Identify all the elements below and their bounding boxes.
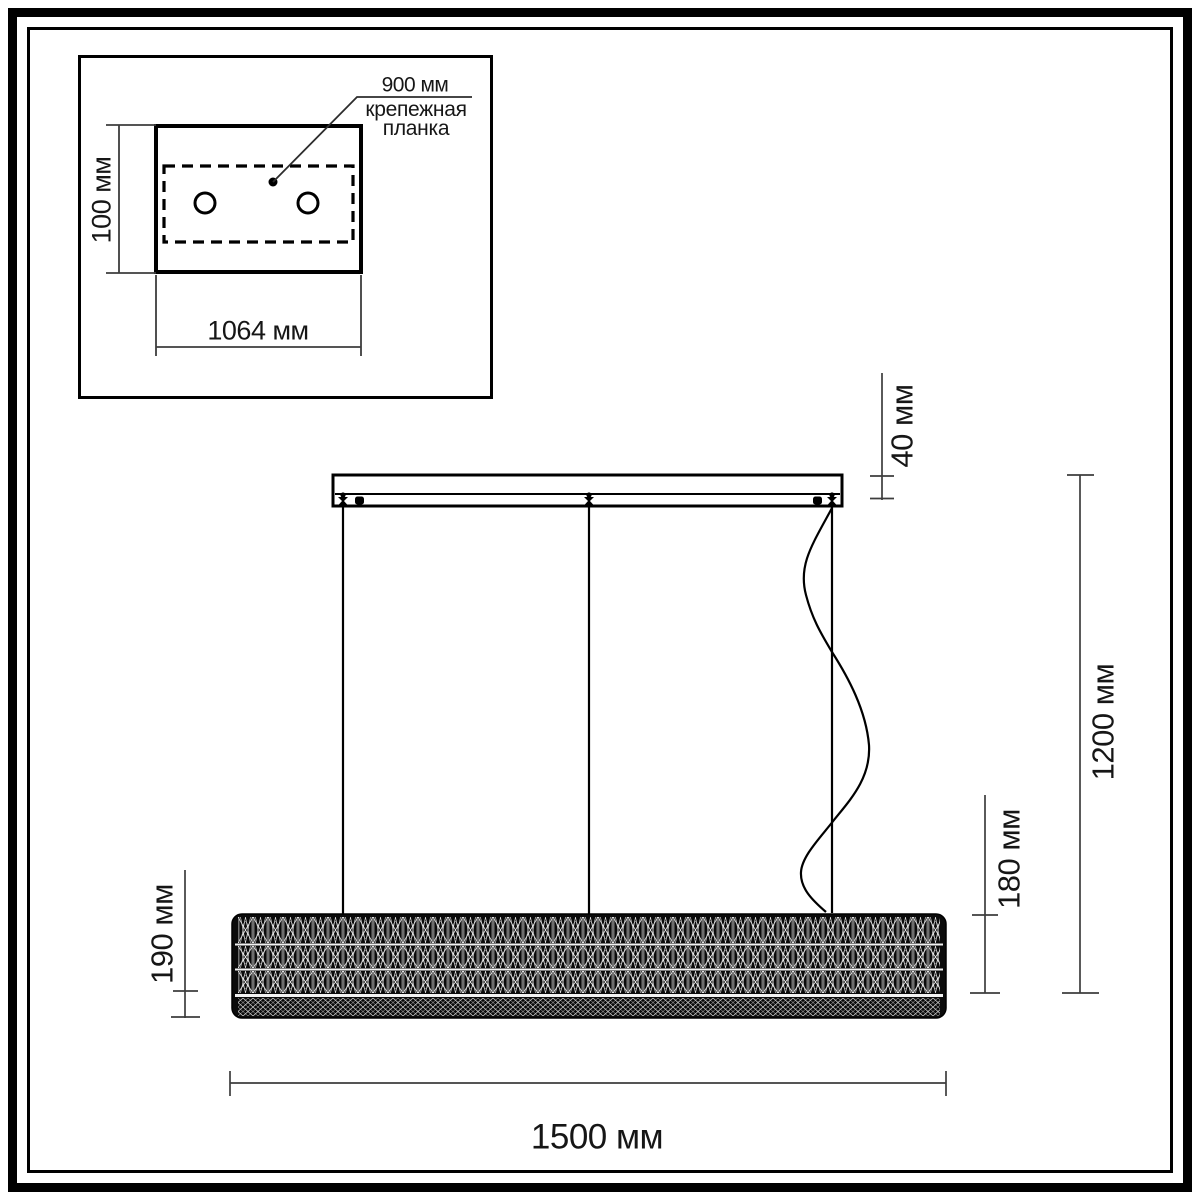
connector-block-left: [355, 497, 364, 505]
fixture-length-dim-label: 1500 мм: [531, 1120, 663, 1155]
power-cord: [801, 508, 869, 912]
fixture-length-dim-lines: [230, 1071, 946, 1096]
canopy-height-dim-label: 40 мм: [887, 384, 918, 467]
crystal-bottom-band: [238, 998, 940, 1016]
screw-hole-right: [298, 193, 318, 213]
mounting-plate-outline: [156, 126, 361, 272]
callout-text-label: крепежная планка: [365, 100, 466, 138]
connector-dot-middle: [586, 492, 591, 497]
crystal-row-2: [238, 946, 940, 968]
plate-height-dim-label: 100 мм: [89, 157, 116, 244]
connector-block-right: [813, 497, 822, 505]
callout-value-label: 900 мм: [382, 75, 449, 96]
screw-hole-left: [195, 193, 215, 213]
connector-dot-right: [829, 492, 834, 497]
diagram-canvas: [0, 0, 1200, 1200]
lamp-dimension-diagram: 900 мм крепежная планка 100 мм 1064 мм 4…: [0, 0, 1200, 1200]
overall-height-dim-label: 1200 мм: [1088, 664, 1119, 781]
callout-text-line2: планка: [365, 119, 466, 138]
plate-width-dim-label: 1064 мм: [207, 318, 308, 345]
ceiling-canopy-bar: [333, 475, 842, 506]
fixture-height-dim-label: 190 мм: [147, 884, 178, 984]
suspension-height-dim-label: 180 мм: [994, 809, 1025, 909]
crystal-row-3: [238, 971, 940, 993]
crystal-row-1: [238, 917, 940, 943]
connector-dot-left: [340, 492, 345, 497]
